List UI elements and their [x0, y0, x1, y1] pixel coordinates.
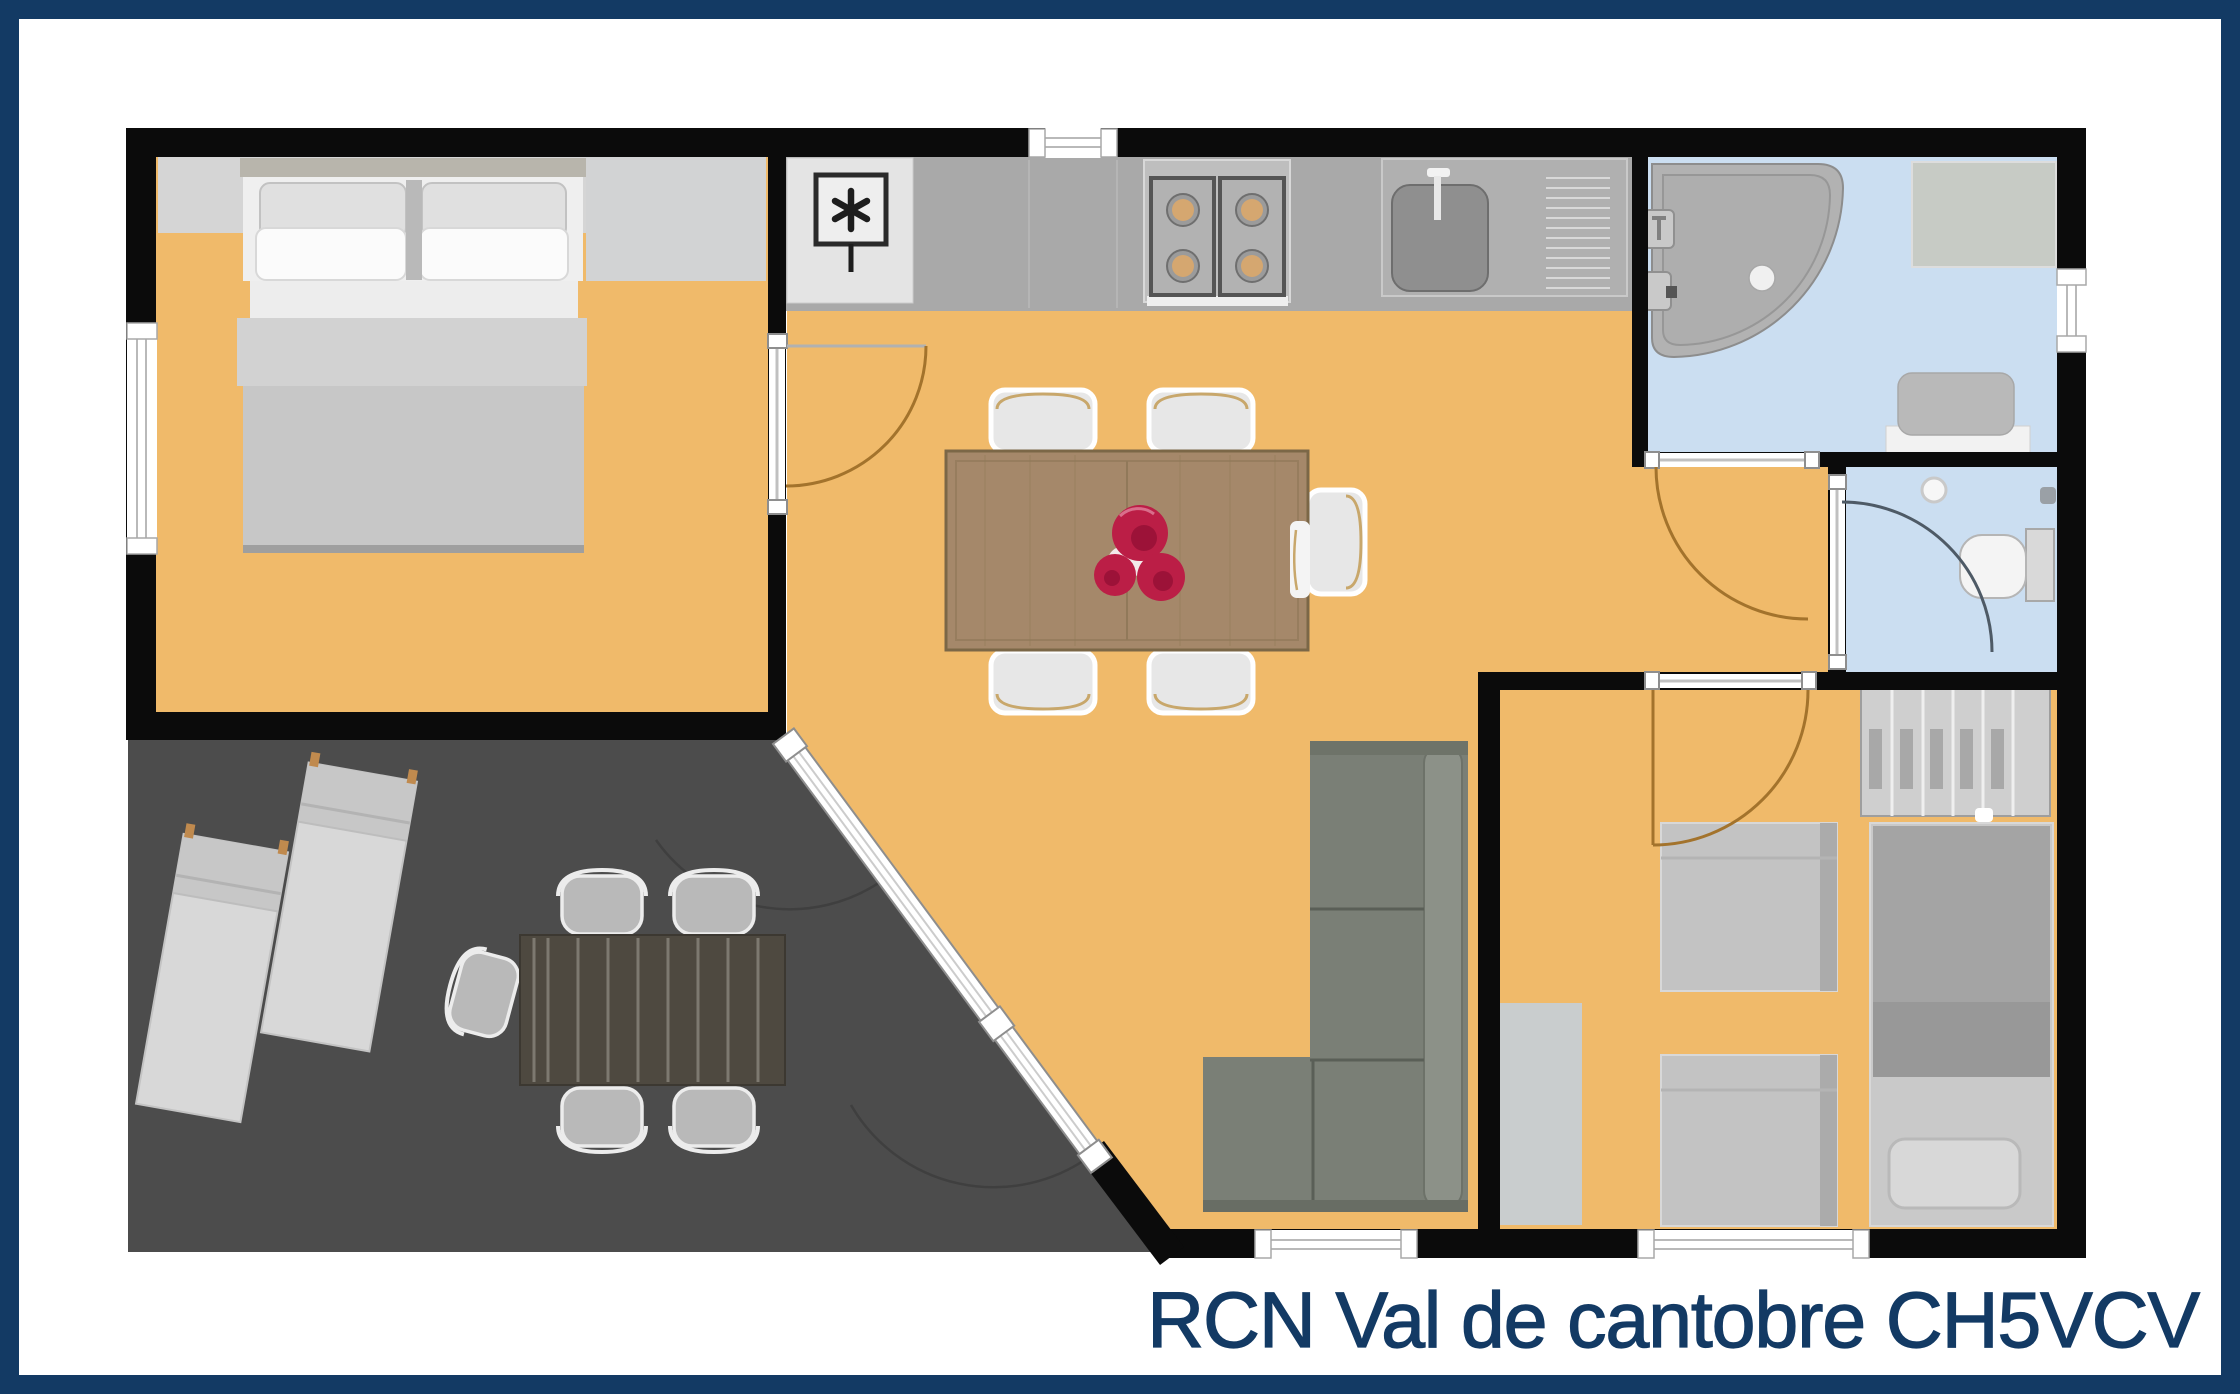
- svg-text:RCN Val de cantobre CH5VCV: RCN Val de cantobre CH5VCV: [1147, 1275, 2200, 1364]
